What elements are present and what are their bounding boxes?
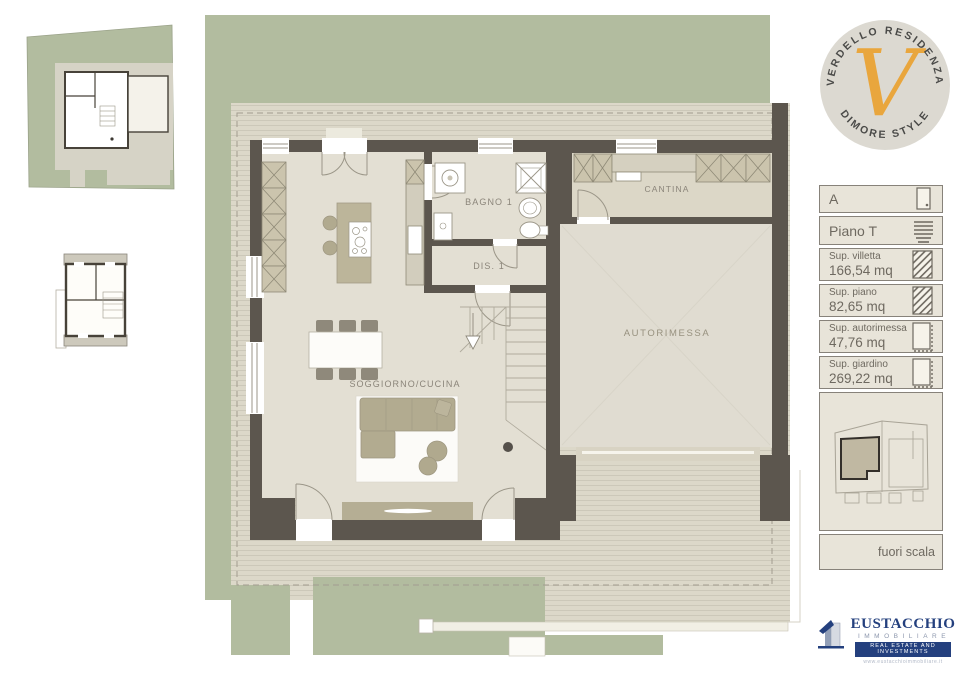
agency-division: IMMOBILIARE: [858, 633, 950, 640]
window: [246, 342, 264, 414]
outline-area-icon: [911, 358, 935, 388]
window: [616, 139, 657, 154]
window: [246, 256, 264, 298]
residence-logo: V VERDELLO RESIDENZA DIMORE STYLE: [815, 15, 955, 155]
entry-label: Sup. autorimessa: [829, 323, 907, 335]
stool: [323, 216, 337, 230]
hatched-area-icon: [911, 286, 935, 316]
entry-value: 47,76 mq: [829, 335, 907, 351]
buildings-icon: [816, 617, 846, 651]
entry-label: Sup. piano: [829, 287, 885, 299]
column: [503, 442, 513, 452]
legend-entry-row: Sup. autorimessa 47,76 mq: [819, 320, 943, 353]
legend-panel: A Piano T Sup. villetta 166,54 mq: [819, 185, 943, 573]
partition-dis-south: [424, 285, 475, 293]
window: [478, 138, 513, 154]
unit-label: A: [829, 191, 838, 207]
entry-label: Sup. villetta: [829, 251, 893, 263]
shower: [516, 163, 546, 193]
legend-unit-row: A: [819, 185, 943, 213]
east-wall: [546, 140, 560, 540]
entry-value: 166,54 mq: [829, 263, 893, 279]
room-label-cantina: CANTINA: [644, 184, 689, 194]
vanity: [434, 213, 452, 240]
room-label-soggiorno: SOGGIORNO/CUCINA: [349, 379, 460, 389]
scale-note: fuori scala: [878, 545, 935, 559]
lawn-patch: [545, 635, 663, 655]
chaise: [361, 431, 395, 458]
dining-table-set: [309, 320, 382, 380]
agency-logo: EUSTACCHIO IMMOBILIARE REAL ESTATE AND I…: [816, 617, 960, 665]
lawn-patch: [231, 585, 290, 655]
agency-name: EUSTACCHIO: [851, 617, 956, 632]
room-label-autorimessa: AUTORIMESSA: [624, 328, 711, 339]
legend-entry-row: Sup. piano 82,65 mq: [819, 284, 943, 317]
hatched-area-icon: [911, 250, 935, 280]
floor-level-icon: [911, 218, 935, 244]
legend-floor-row: Piano T: [819, 216, 943, 245]
floor-label: Piano T: [829, 223, 877, 239]
upper-floor-thumbnail: [56, 254, 127, 348]
stool: [323, 241, 337, 255]
room-label-bagno: BAGNO 1: [465, 197, 513, 207]
gate-post: [419, 619, 433, 633]
room-label-dis: DIS. 1: [473, 261, 505, 271]
west-wall: [250, 140, 262, 520]
pouf: [419, 457, 437, 475]
garden-rail: [432, 622, 788, 631]
highlighted-unit: [841, 437, 879, 479]
flyer-page: BAGNO 1 CANTINA DIS. 1 SOGGIORNO/CUCINA …: [0, 0, 960, 679]
kitchen-units: [406, 160, 424, 285]
scale-note-row: fuori scala: [819, 534, 943, 570]
outline-area-icon: [911, 322, 935, 352]
closet-strip-west: [262, 162, 286, 292]
washbasin: [519, 198, 541, 218]
agency-tagline: REAL ESTATE AND INVESTMENTS: [855, 642, 951, 657]
site-plan-thumbnail: [27, 25, 174, 189]
entry-value: 82,65 mq: [829, 299, 885, 315]
north-wall: [250, 140, 560, 152]
key-plan-row: [819, 392, 943, 531]
legend-entry-row: Sup. giardino 269,22 mq: [819, 356, 943, 389]
door-icon: [913, 186, 935, 212]
entry-value: 269,22 mq: [829, 371, 893, 387]
entry-label: Sup. giardino: [829, 359, 893, 371]
agency-website: www.eustacchioimmobiliare.it: [863, 659, 942, 665]
sofa-group: [356, 396, 458, 482]
legend-entry-row: Sup. villetta 166,54 mq: [819, 248, 943, 281]
key-plan: [827, 399, 935, 524]
window: [262, 138, 289, 154]
washing-machine: [435, 163, 465, 193]
